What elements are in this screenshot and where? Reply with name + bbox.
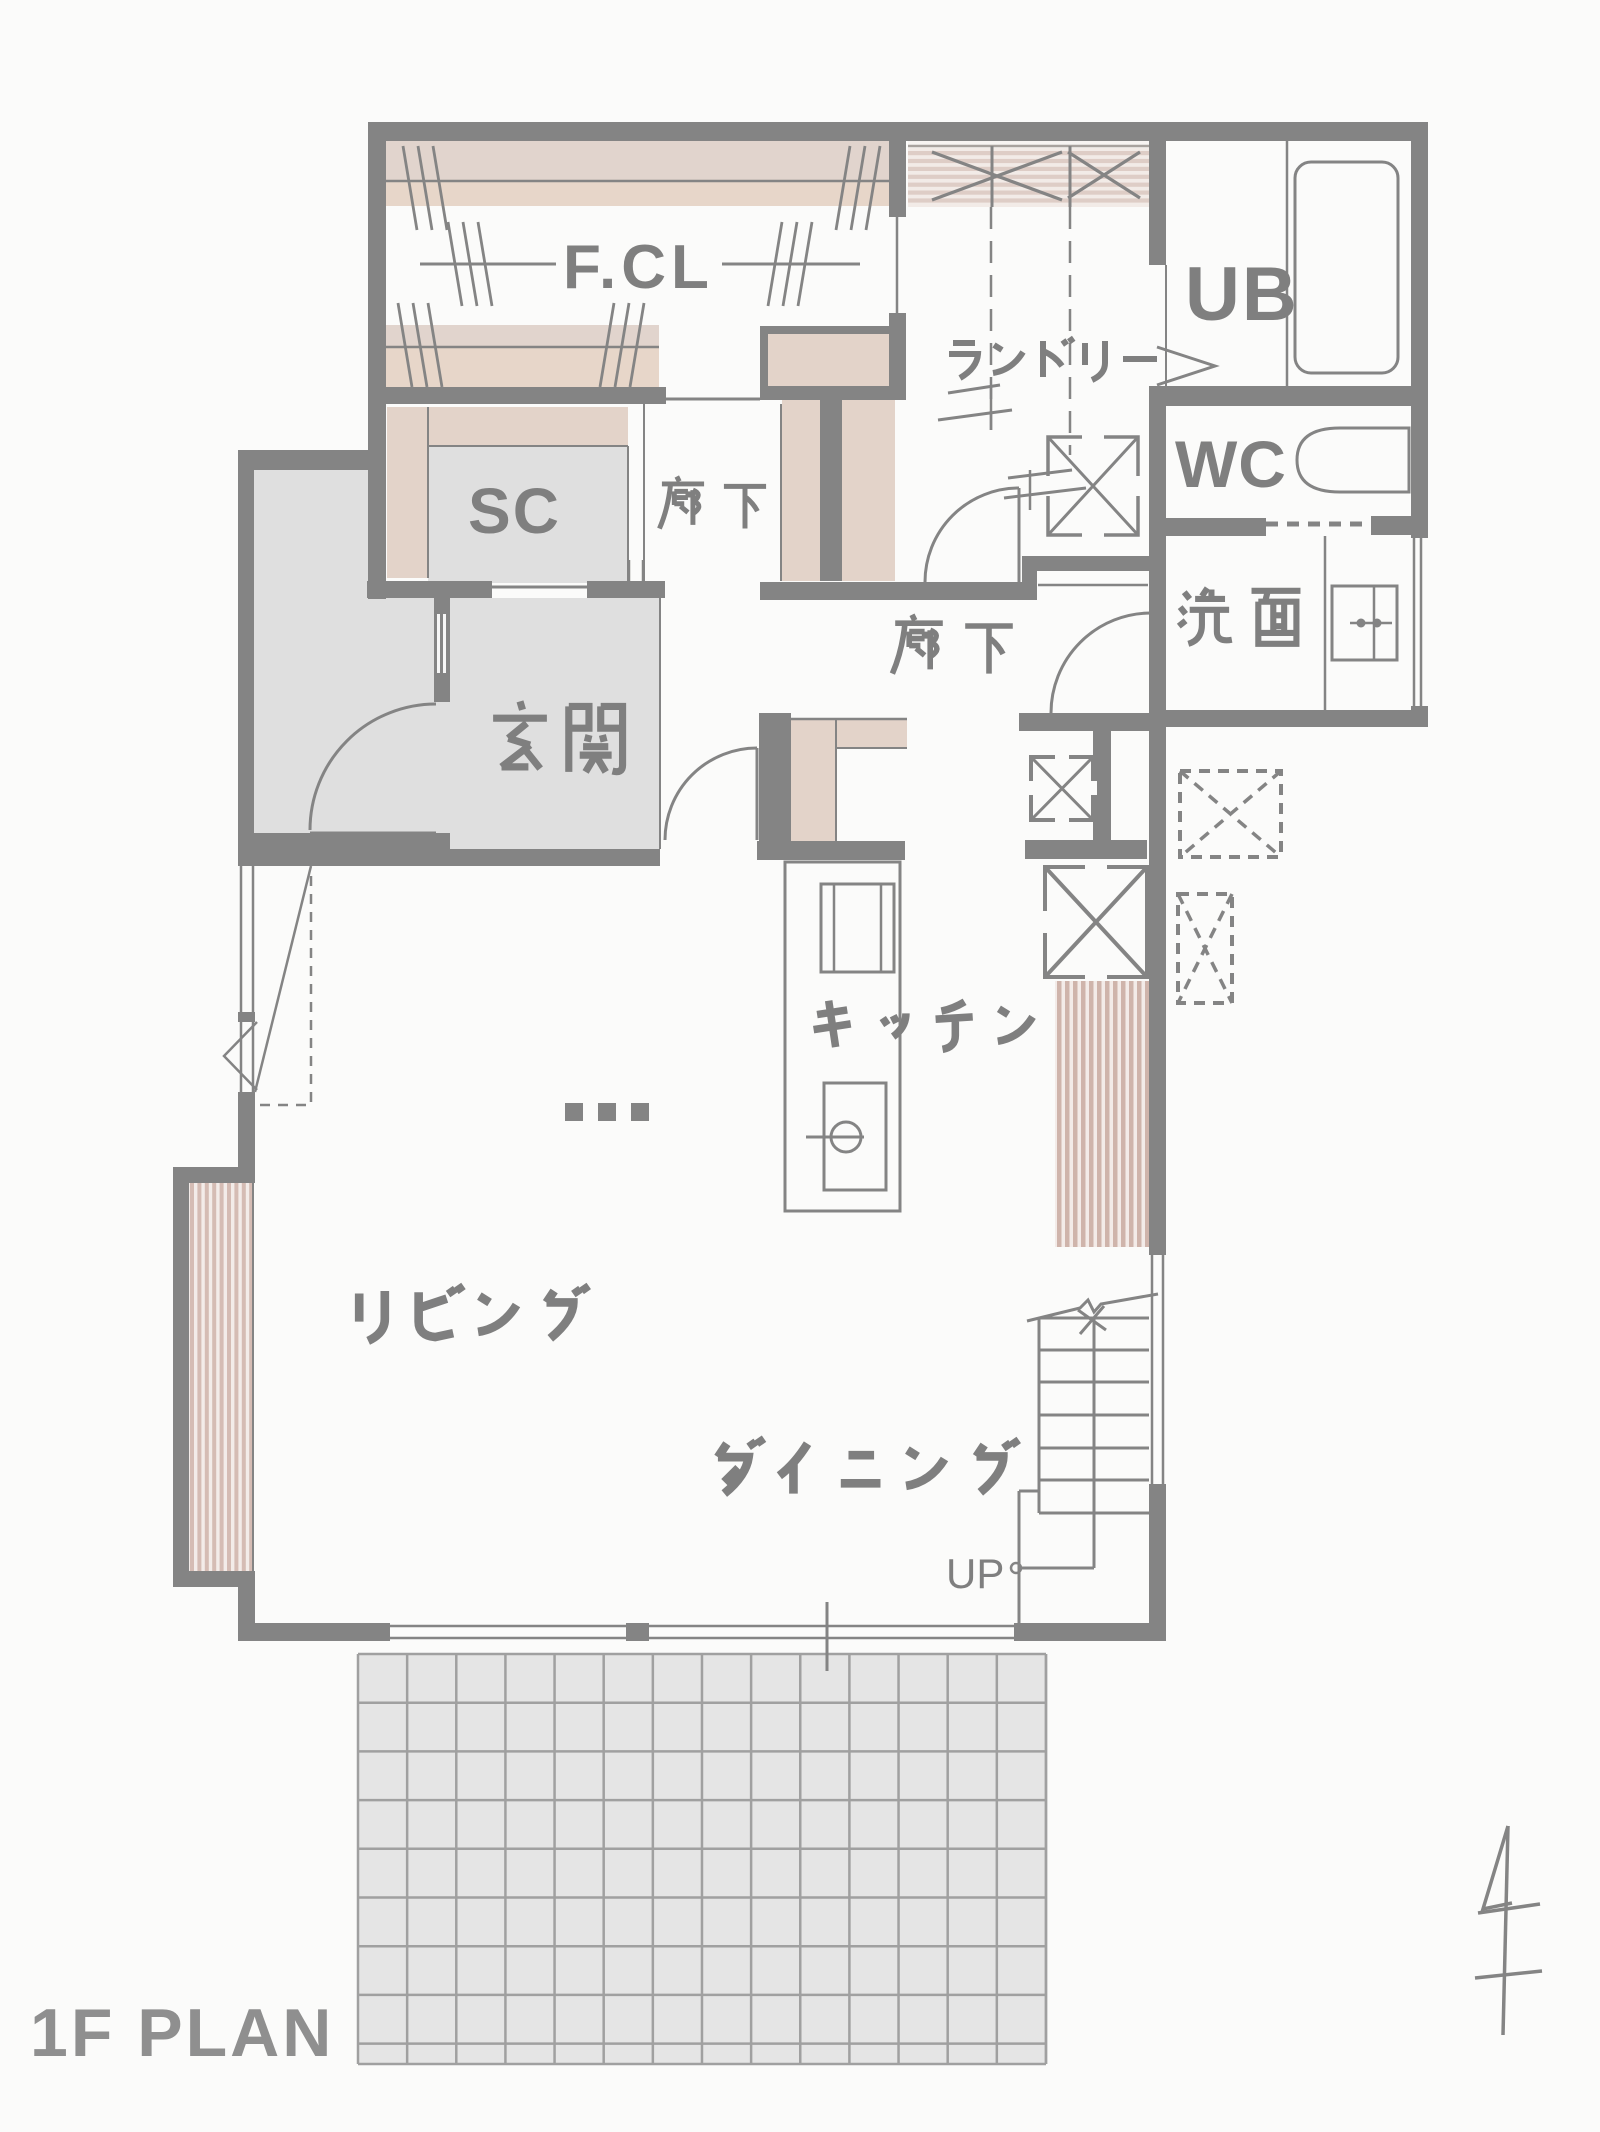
svg-text:WC: WC: [1175, 427, 1287, 501]
svg-text:1F PLAN: 1F PLAN: [30, 1995, 334, 2071]
svg-text:UP: UP: [946, 1550, 1004, 1597]
svg-text:UB: UB: [1185, 252, 1299, 337]
svg-text:F.CL: F.CL: [563, 233, 714, 302]
svg-text:SC: SC: [468, 475, 561, 547]
